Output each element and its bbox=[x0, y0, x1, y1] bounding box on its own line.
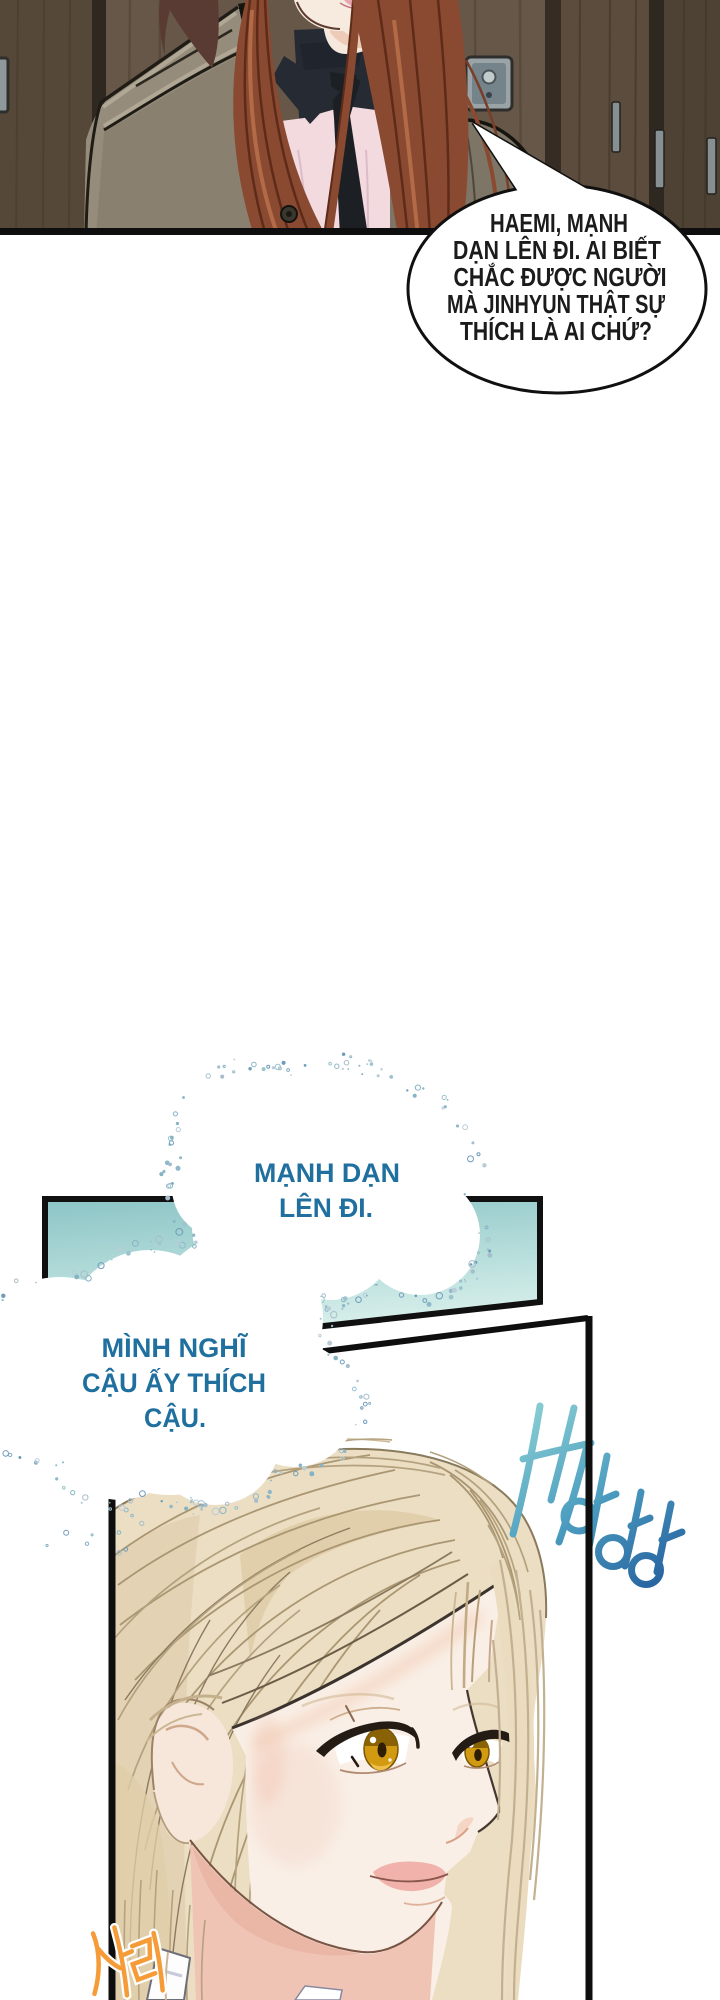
svg-text:CHẮC ĐƯỢC NGƯỜI: CHẮC ĐƯỢC NGƯỜI bbox=[454, 262, 667, 292]
svg-text:MẠNH DẠN: MẠNH DẠN bbox=[254, 1158, 400, 1188]
svg-text:MÌNH NGHĨ: MÌNH NGHĨ bbox=[102, 1332, 249, 1363]
svg-text:CẬU ẤY THÍCH: CẬU ẤY THÍCH bbox=[82, 1367, 266, 1398]
svg-text:LÊN ĐI.: LÊN ĐI. bbox=[279, 1192, 373, 1223]
svg-text:HAEMI, MẠNH: HAEMI, MẠNH bbox=[490, 208, 628, 238]
svg-text:DẠN LÊN ĐI. AI BIẾT: DẠN LÊN ĐI. AI BIẾT bbox=[453, 235, 661, 265]
svg-text:CẬU.: CẬU. bbox=[144, 1402, 206, 1433]
svg-text:MÀ JINHYUN THẬT SỰ: MÀ JINHYUN THẬT SỰ bbox=[447, 289, 665, 319]
svg-text:THÍCH LÀ AI CHỨ?: THÍCH LÀ AI CHỨ? bbox=[460, 316, 652, 346]
